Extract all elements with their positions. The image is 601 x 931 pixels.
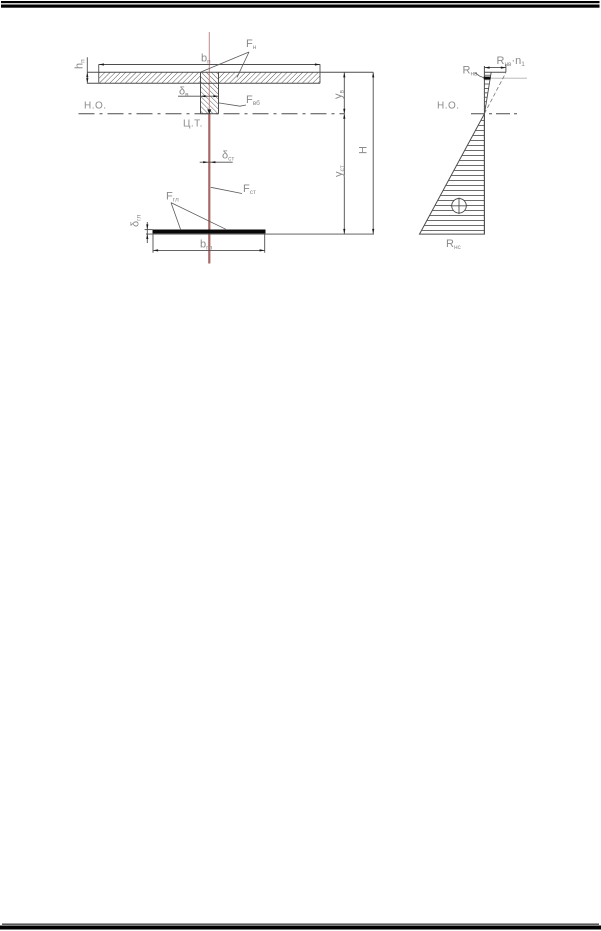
svg-text:Н.О.: Н.О. <box>84 101 107 112</box>
svg-text:Rнв·n1: Rнв·n1 <box>497 55 526 68</box>
svg-text:Н.О.: Н.О. <box>437 101 460 112</box>
svg-text:H: H <box>358 146 370 154</box>
svg-text:Ц.Т.: Ц.Т. <box>183 119 203 130</box>
